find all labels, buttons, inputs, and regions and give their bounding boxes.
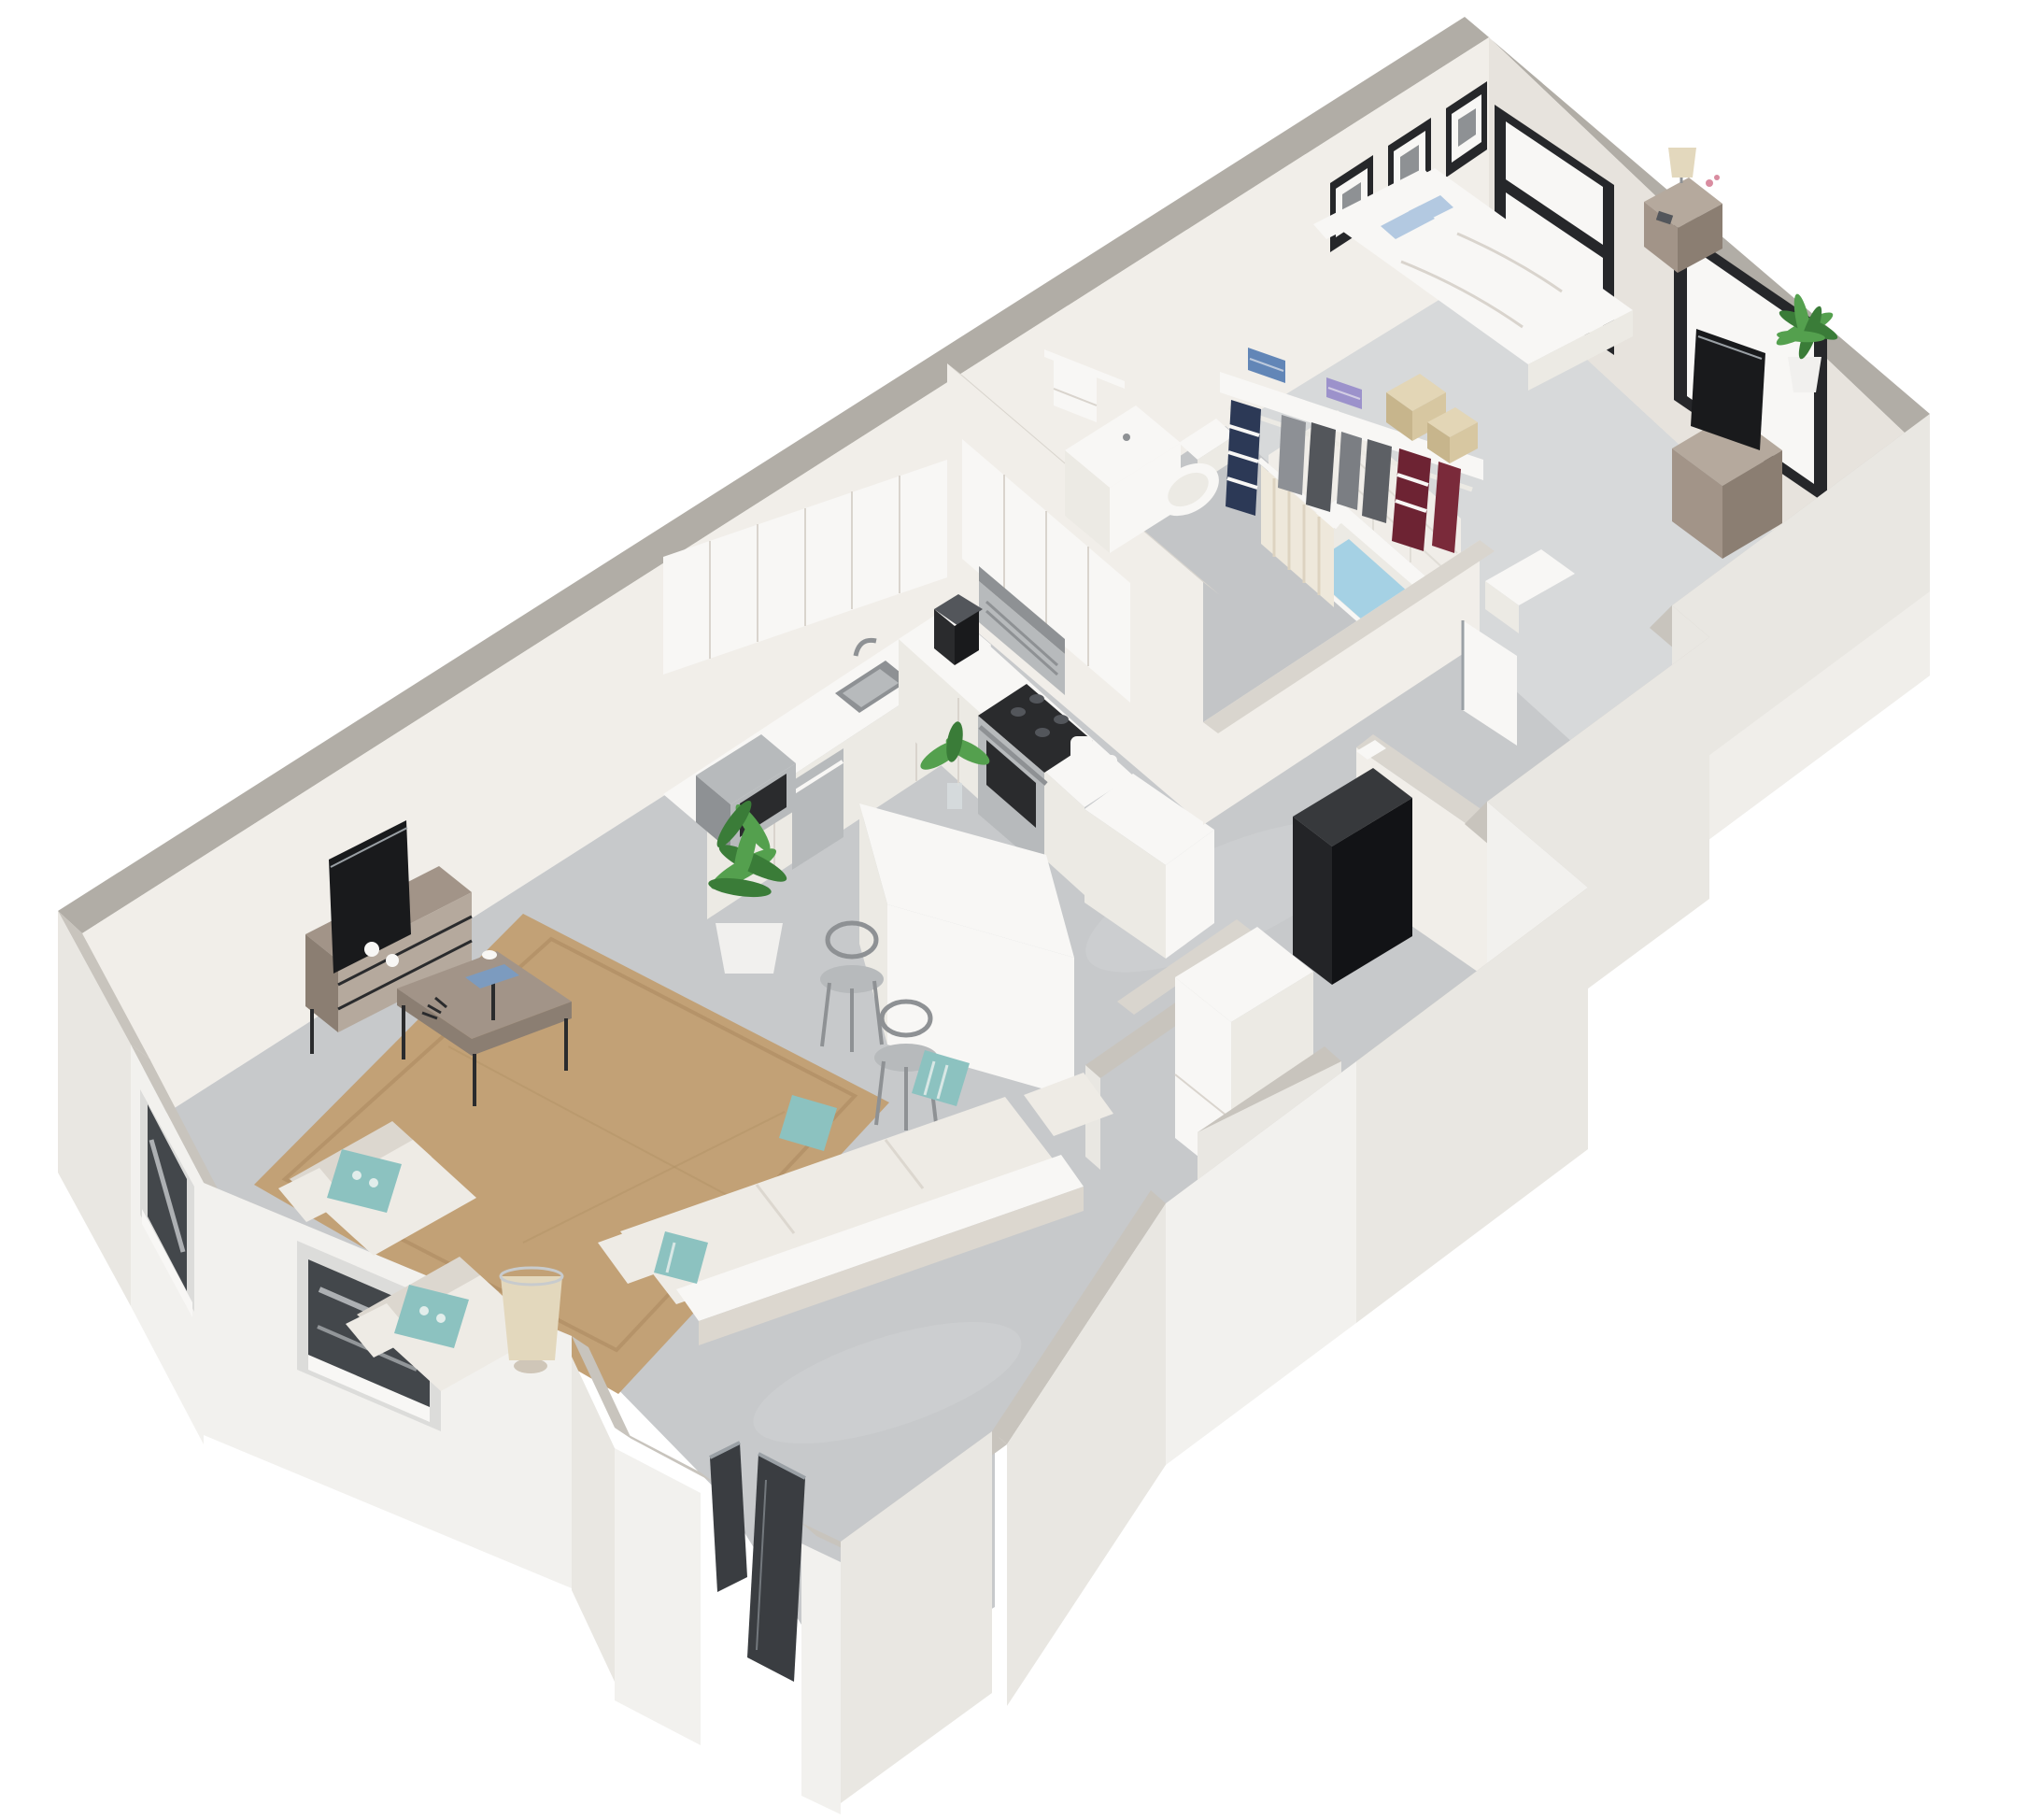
pillow-pattern <box>436 1314 446 1323</box>
burner <box>1011 707 1026 717</box>
burner <box>1054 715 1069 724</box>
floor-plan-canvas <box>0 0 2041 1820</box>
canister <box>1070 736 1093 770</box>
burner <box>1029 694 1044 704</box>
lamp-shade <box>501 1276 562 1360</box>
plant-pot <box>1788 357 1821 392</box>
floor-lamp <box>501 1268 562 1373</box>
pillow-pattern <box>419 1306 429 1315</box>
pillow-pattern <box>352 1171 361 1180</box>
lamp-base <box>514 1358 547 1373</box>
flower <box>1706 179 1713 187</box>
hanging-shirt <box>1278 415 1306 495</box>
plant-pot <box>716 923 783 974</box>
canister <box>1098 755 1117 783</box>
vanity-faucet <box>1123 434 1130 441</box>
pillow-pattern <box>369 1178 378 1187</box>
flower <box>1714 175 1720 180</box>
floor-plan-page <box>0 0 2041 1820</box>
glass-vase <box>947 783 962 809</box>
vestibule-wall-face <box>615 1448 701 1745</box>
burner <box>1035 728 1050 737</box>
decor-ball <box>386 954 399 967</box>
candle <box>482 950 497 960</box>
decor-ball <box>364 942 379 957</box>
vestibule-wall-face <box>801 1543 841 1814</box>
table-lamp-shade <box>1668 148 1696 178</box>
